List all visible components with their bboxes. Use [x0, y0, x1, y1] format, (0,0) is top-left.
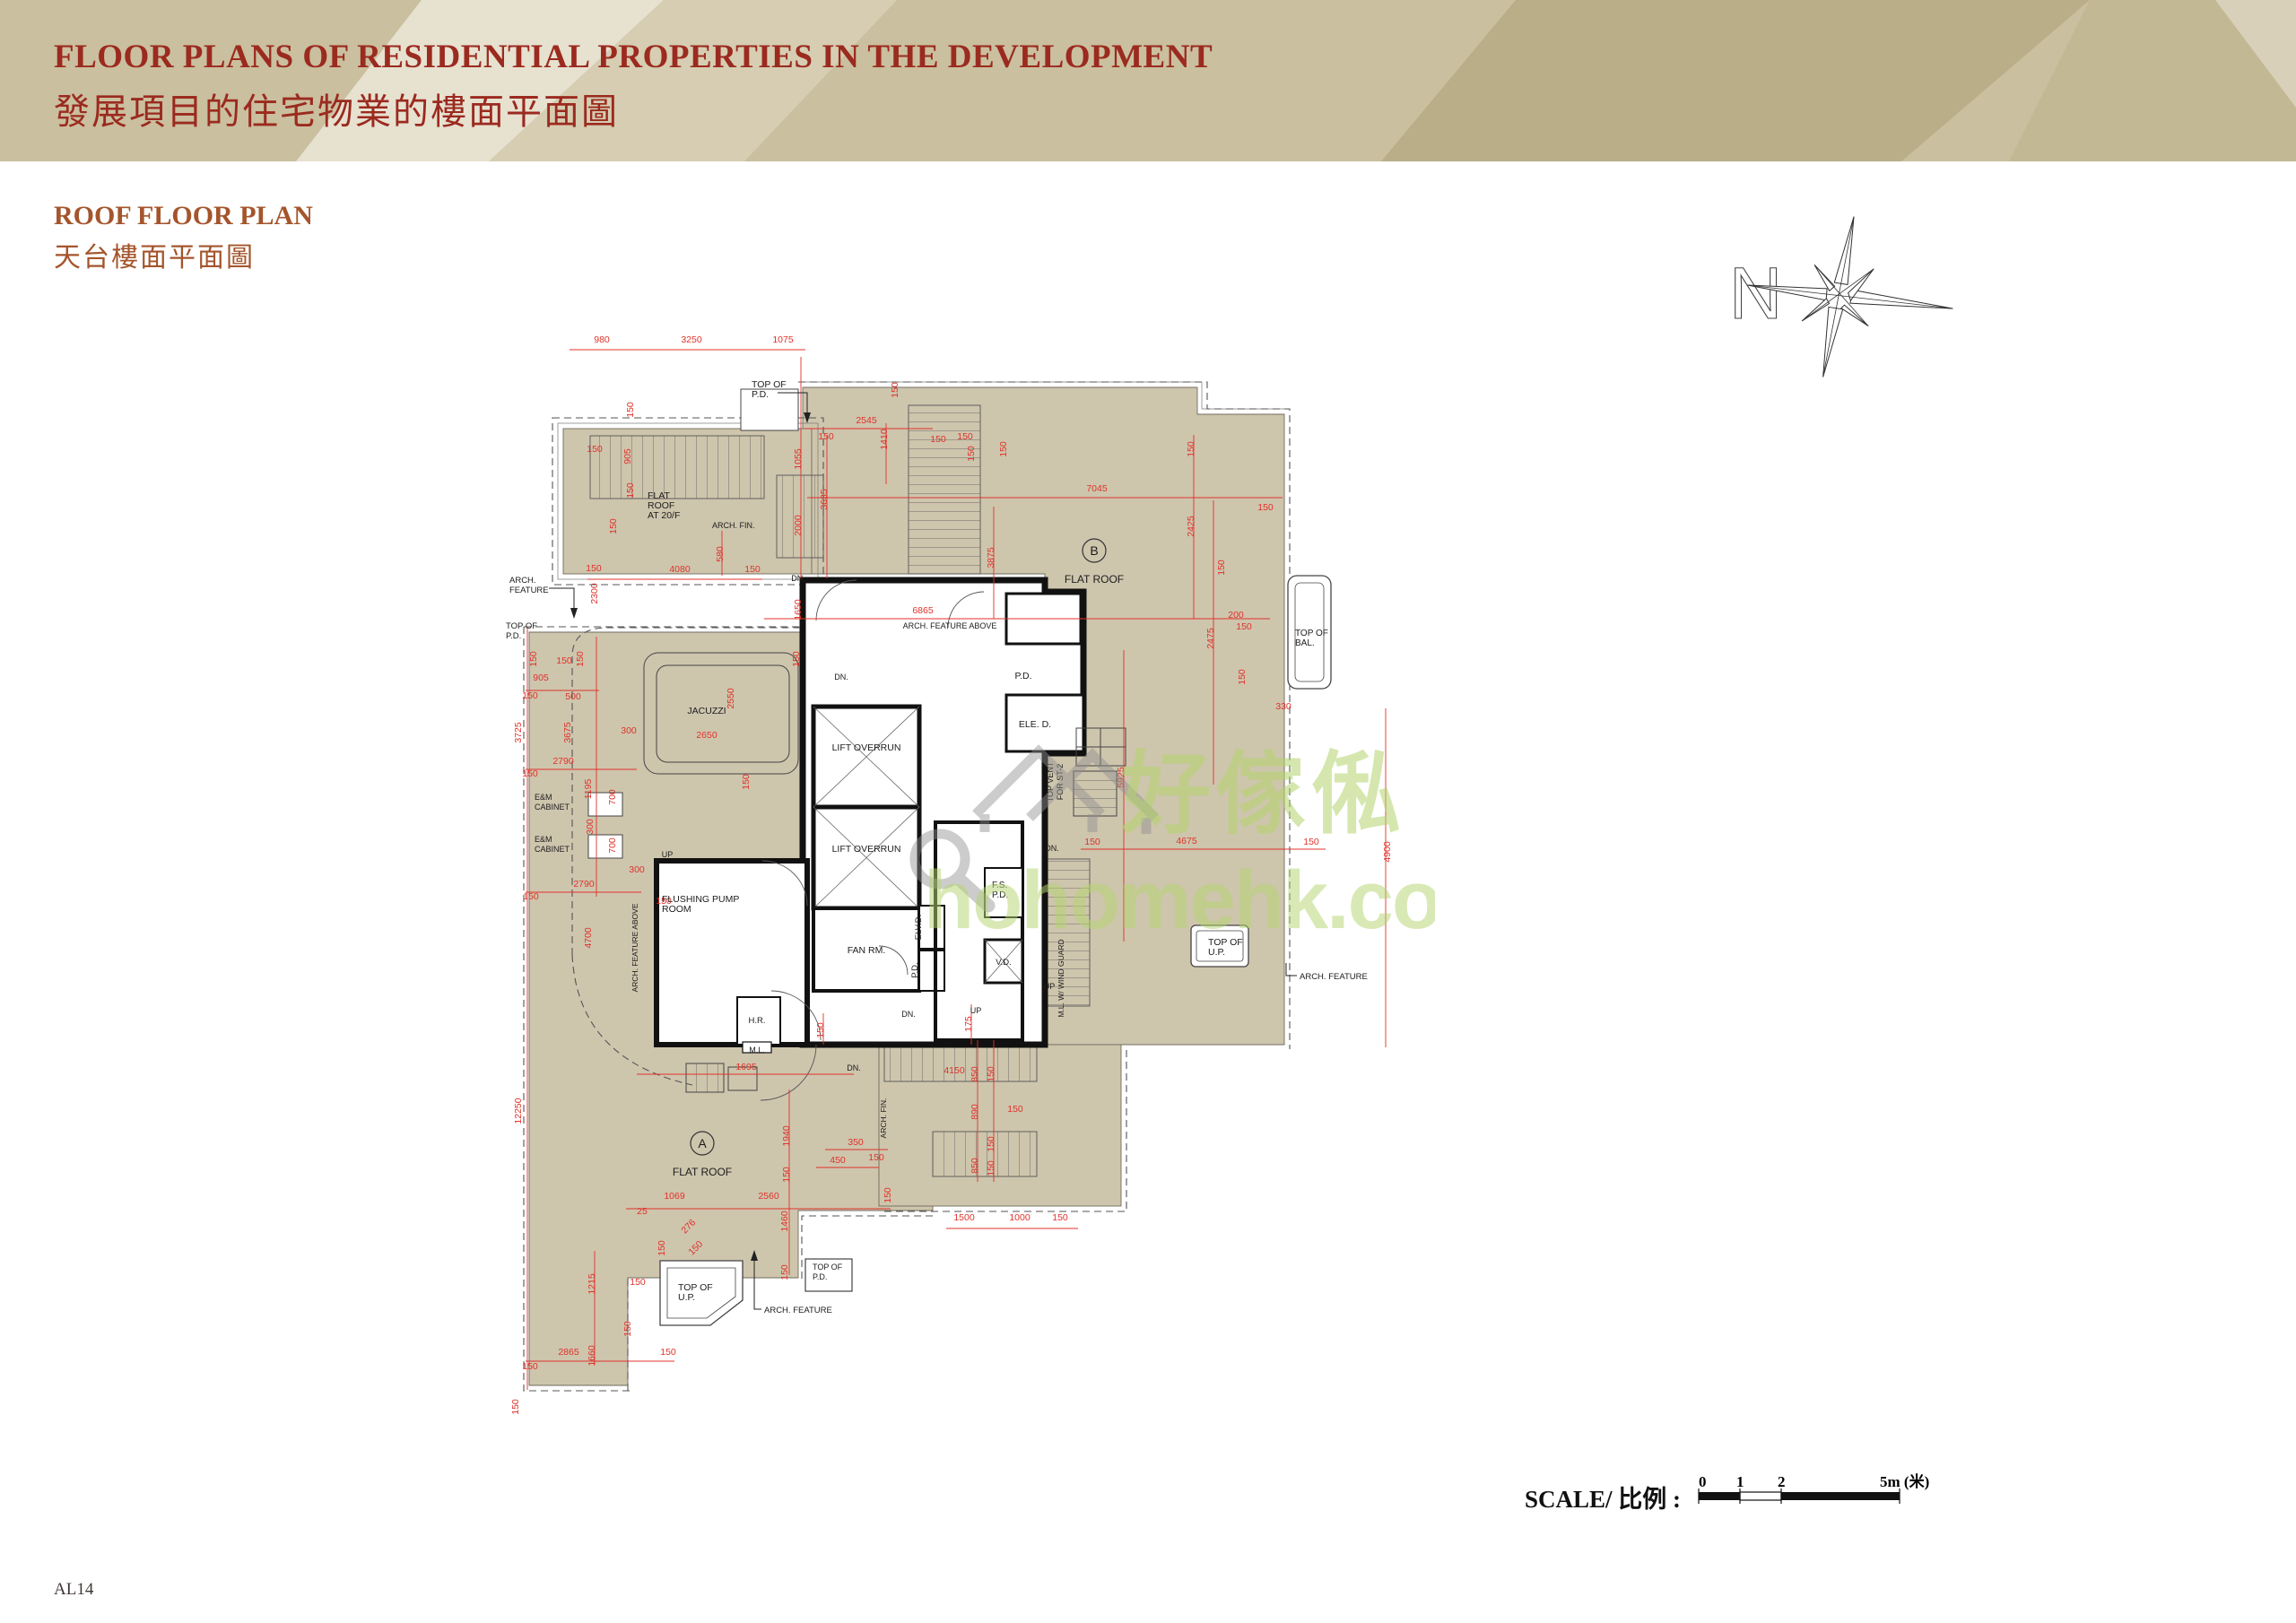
- svg-text:FLAT ROOF: FLAT ROOF: [673, 1166, 732, 1178]
- svg-text:FAN RM.: FAN RM.: [848, 945, 886, 956]
- svg-text:2550: 2550: [726, 688, 736, 709]
- svg-text:TOP VENTFOR ST-2: TOP VENTFOR ST-2: [1046, 761, 1065, 802]
- svg-text:1460: 1460: [779, 1211, 790, 1232]
- svg-text:4080: 4080: [669, 564, 691, 575]
- svg-text:150: 150: [966, 446, 977, 462]
- svg-text:H.R.: H.R.: [749, 1016, 766, 1026]
- svg-text:ELE. D.: ELE. D.: [1019, 719, 1051, 730]
- svg-text:150: 150: [625, 482, 636, 499]
- svg-text:1650: 1650: [793, 599, 804, 621]
- svg-text:ELV.D.: ELV.D.: [914, 915, 924, 941]
- svg-text:300: 300: [621, 725, 637, 736]
- svg-text:1: 1: [1736, 1473, 1744, 1490]
- svg-text:150: 150: [930, 434, 946, 445]
- header-band-decoration: [0, 0, 2296, 161]
- svg-text:3725: 3725: [513, 722, 524, 743]
- svg-text:150: 150: [791, 651, 802, 667]
- page-title-en: FLOOR PLANS OF RESIDENTIAL PROPERTIES IN…: [54, 38, 1213, 76]
- svg-text:3875: 3875: [986, 547, 996, 568]
- svg-text:ARCH. FEATURE: ARCH. FEATURE: [764, 1306, 832, 1315]
- svg-text:FLAT ROOF: FLAT ROOF: [1065, 573, 1124, 586]
- svg-text:1055: 1055: [793, 448, 804, 470]
- svg-text:ARCH. FEATURE ABOVE: ARCH. FEATURE ABOVE: [903, 621, 997, 630]
- svg-text:ARCH. FIN.: ARCH. FIN.: [879, 1098, 888, 1139]
- svg-text:905: 905: [622, 448, 633, 464]
- svg-text:905: 905: [533, 673, 549, 683]
- svg-text:450: 450: [830, 1155, 846, 1166]
- svg-text:6865: 6865: [912, 605, 934, 616]
- svg-text:M.L.: M.L.: [749, 1046, 765, 1055]
- svg-text:300: 300: [629, 864, 645, 875]
- svg-text:2545: 2545: [856, 415, 877, 426]
- svg-text:700: 700: [607, 789, 618, 805]
- svg-text:DN.: DN.: [847, 1063, 861, 1072]
- svg-text:150: 150: [660, 1347, 676, 1358]
- svg-text:200: 200: [1228, 610, 1244, 621]
- svg-text:150: 150: [625, 402, 636, 418]
- svg-text:150: 150: [779, 1264, 790, 1280]
- svg-text:UP: UP: [1044, 982, 1056, 991]
- svg-text:150: 150: [1257, 502, 1274, 513]
- svg-text:150: 150: [998, 441, 1009, 457]
- svg-text:4900: 4900: [1382, 841, 1393, 863]
- svg-text:2790: 2790: [573, 879, 595, 890]
- svg-text:150: 150: [1236, 621, 1252, 632]
- roof-floor-plan-drawing: 9803250107515090515015015010552000254514…: [502, 323, 1417, 1462]
- svg-text:150: 150: [510, 1399, 521, 1415]
- svg-text:V.D.: V.D.: [996, 958, 1012, 968]
- svg-text:P.D.: P.D.: [910, 962, 920, 977]
- north-compass: N: [1704, 206, 2000, 386]
- svg-text:0: 0: [1699, 1473, 1707, 1490]
- svg-text:150: 150: [528, 651, 539, 667]
- svg-text:2865: 2865: [558, 1347, 579, 1358]
- north-label: N: [1729, 253, 1782, 334]
- svg-text:150: 150: [1007, 1104, 1023, 1115]
- svg-text:150: 150: [522, 768, 538, 779]
- svg-text:150: 150: [1237, 669, 1248, 685]
- svg-text:150: 150: [522, 690, 538, 701]
- svg-text:4150: 4150: [944, 1065, 965, 1076]
- svg-text:LIFT OVERRUN: LIFT OVERRUN: [832, 742, 901, 753]
- svg-text:150: 150: [986, 1160, 996, 1176]
- svg-text:P.D.: P.D.: [1014, 671, 1031, 681]
- svg-text:150: 150: [657, 1240, 667, 1256]
- svg-text:150: 150: [630, 1277, 646, 1288]
- svg-text:2650: 2650: [696, 730, 717, 741]
- svg-text:150: 150: [608, 518, 619, 534]
- section-title-en: ROOF FLOOR PLAN: [54, 201, 313, 231]
- svg-text:2560: 2560: [758, 1191, 779, 1202]
- svg-text:7045: 7045: [1086, 483, 1108, 494]
- svg-text:500: 500: [565, 691, 581, 702]
- svg-text:F.S.P.D.: F.S.P.D.: [992, 881, 1008, 900]
- svg-text:3675: 3675: [562, 722, 573, 743]
- svg-text:150: 150: [622, 1321, 633, 1337]
- svg-text:1695: 1695: [735, 1062, 757, 1072]
- svg-text:1195: 1195: [583, 779, 594, 800]
- svg-text:A: A: [698, 1136, 707, 1150]
- svg-text:150: 150: [741, 774, 752, 790]
- svg-text:2000: 2000: [793, 515, 804, 536]
- svg-text:150: 150: [781, 1167, 792, 1183]
- svg-text:150: 150: [1084, 837, 1100, 847]
- svg-text:DN.: DN.: [791, 574, 805, 583]
- svg-text:DN.: DN.: [1045, 844, 1059, 853]
- svg-text:850: 850: [970, 1158, 980, 1174]
- svg-text:1069: 1069: [664, 1191, 685, 1202]
- svg-text:JACUZZI: JACUZZI: [687, 706, 726, 716]
- svg-text:150: 150: [818, 431, 834, 442]
- svg-text:150: 150: [986, 1066, 996, 1082]
- svg-text:890: 890: [970, 1104, 980, 1120]
- svg-text:350: 350: [848, 1137, 864, 1148]
- svg-text:1940: 1940: [781, 1125, 792, 1147]
- svg-text:1215: 1215: [587, 1273, 597, 1295]
- svg-text:150: 150: [587, 444, 603, 455]
- svg-text:150: 150: [868, 1152, 884, 1163]
- svg-text:1000: 1000: [1009, 1212, 1031, 1223]
- svg-text:330: 330: [1275, 701, 1291, 712]
- svg-text:2475: 2475: [1205, 628, 1216, 649]
- svg-text:1500: 1500: [953, 1212, 975, 1223]
- svg-text:DN.: DN.: [901, 1010, 916, 1019]
- svg-text:150: 150: [744, 564, 761, 575]
- svg-text:150: 150: [890, 382, 900, 398]
- svg-text:2425: 2425: [1186, 516, 1196, 537]
- svg-text:2300: 2300: [589, 583, 600, 604]
- svg-text:2790: 2790: [552, 756, 574, 767]
- svg-text:LIFT OVERRUN: LIFT OVERRUN: [832, 844, 901, 855]
- scale-caption: SCALE/ 比例 :: [1525, 1480, 1681, 1515]
- svg-text:DN.: DN.: [834, 673, 848, 681]
- svg-text:300: 300: [585, 819, 596, 835]
- svg-text:4700: 4700: [583, 927, 594, 949]
- svg-text:150: 150: [883, 1187, 893, 1203]
- svg-text:150: 150: [586, 563, 602, 574]
- svg-text:1410: 1410: [879, 429, 890, 450]
- section-title-zh: 天台樓面平面圖: [54, 235, 255, 274]
- svg-text:4675: 4675: [1176, 836, 1197, 846]
- svg-text:980: 980: [594, 334, 610, 345]
- scale-bar: SCALE/ 比例 : 0 1 2 5m (米): [1525, 1472, 1993, 1517]
- svg-text:5925: 5925: [1116, 767, 1126, 788]
- svg-text:3635: 3635: [819, 489, 830, 510]
- svg-text:ARCH. FEATURE: ARCH. FEATURE: [1300, 972, 1368, 982]
- svg-text:B: B: [1090, 543, 1098, 558]
- svg-text:1075: 1075: [772, 334, 794, 345]
- svg-text:1660: 1660: [587, 1345, 597, 1367]
- svg-text:150: 150: [1216, 560, 1227, 576]
- svg-text:5m (米): 5m (米): [1880, 1472, 1929, 1490]
- svg-text:150: 150: [815, 1022, 826, 1038]
- svg-text:700: 700: [607, 838, 618, 854]
- svg-text:3250: 3250: [681, 334, 702, 345]
- svg-text:850: 850: [970, 1066, 980, 1082]
- svg-text:150: 150: [1052, 1212, 1068, 1223]
- svg-text:150: 150: [1186, 441, 1196, 457]
- svg-text:150: 150: [575, 651, 586, 667]
- svg-text:25: 25: [637, 1206, 648, 1217]
- svg-text:150: 150: [523, 891, 539, 902]
- svg-text:150: 150: [986, 1136, 996, 1152]
- svg-text:2: 2: [1778, 1473, 1786, 1490]
- svg-text:150: 150: [1303, 837, 1319, 847]
- svg-text:ARCH.FEATURE: ARCH.FEATURE: [509, 576, 549, 595]
- svg-text:150: 150: [522, 1361, 538, 1372]
- svg-text:150: 150: [957, 431, 973, 442]
- svg-text:ARCH. FIN.: ARCH. FIN.: [712, 521, 755, 530]
- svg-text:12250: 12250: [513, 1098, 524, 1124]
- brochure-page: FLOOR PLANS OF RESIDENTIAL PROPERTIES IN…: [0, 0, 2296, 1623]
- svg-text:UP: UP: [970, 1006, 982, 1015]
- svg-text:UP: UP: [662, 850, 674, 859]
- page-number: AL14: [54, 1580, 93, 1600]
- svg-text:175: 175: [963, 1016, 974, 1032]
- page-title-zh: 發展項目的住宅物業的樓面平面圖: [54, 82, 619, 135]
- svg-text:150: 150: [556, 655, 572, 666]
- scale-bar-graphic: 0 1 2 5m (米): [1697, 1472, 1993, 1517]
- svg-text:580: 580: [715, 546, 726, 562]
- svg-text:ARCH. FEATURE ABOVE: ARCH. FEATURE ABOVE: [631, 903, 639, 992]
- svg-text:M.L. W/ WIND GUARD: M.L. W/ WIND GUARD: [1057, 939, 1065, 1017]
